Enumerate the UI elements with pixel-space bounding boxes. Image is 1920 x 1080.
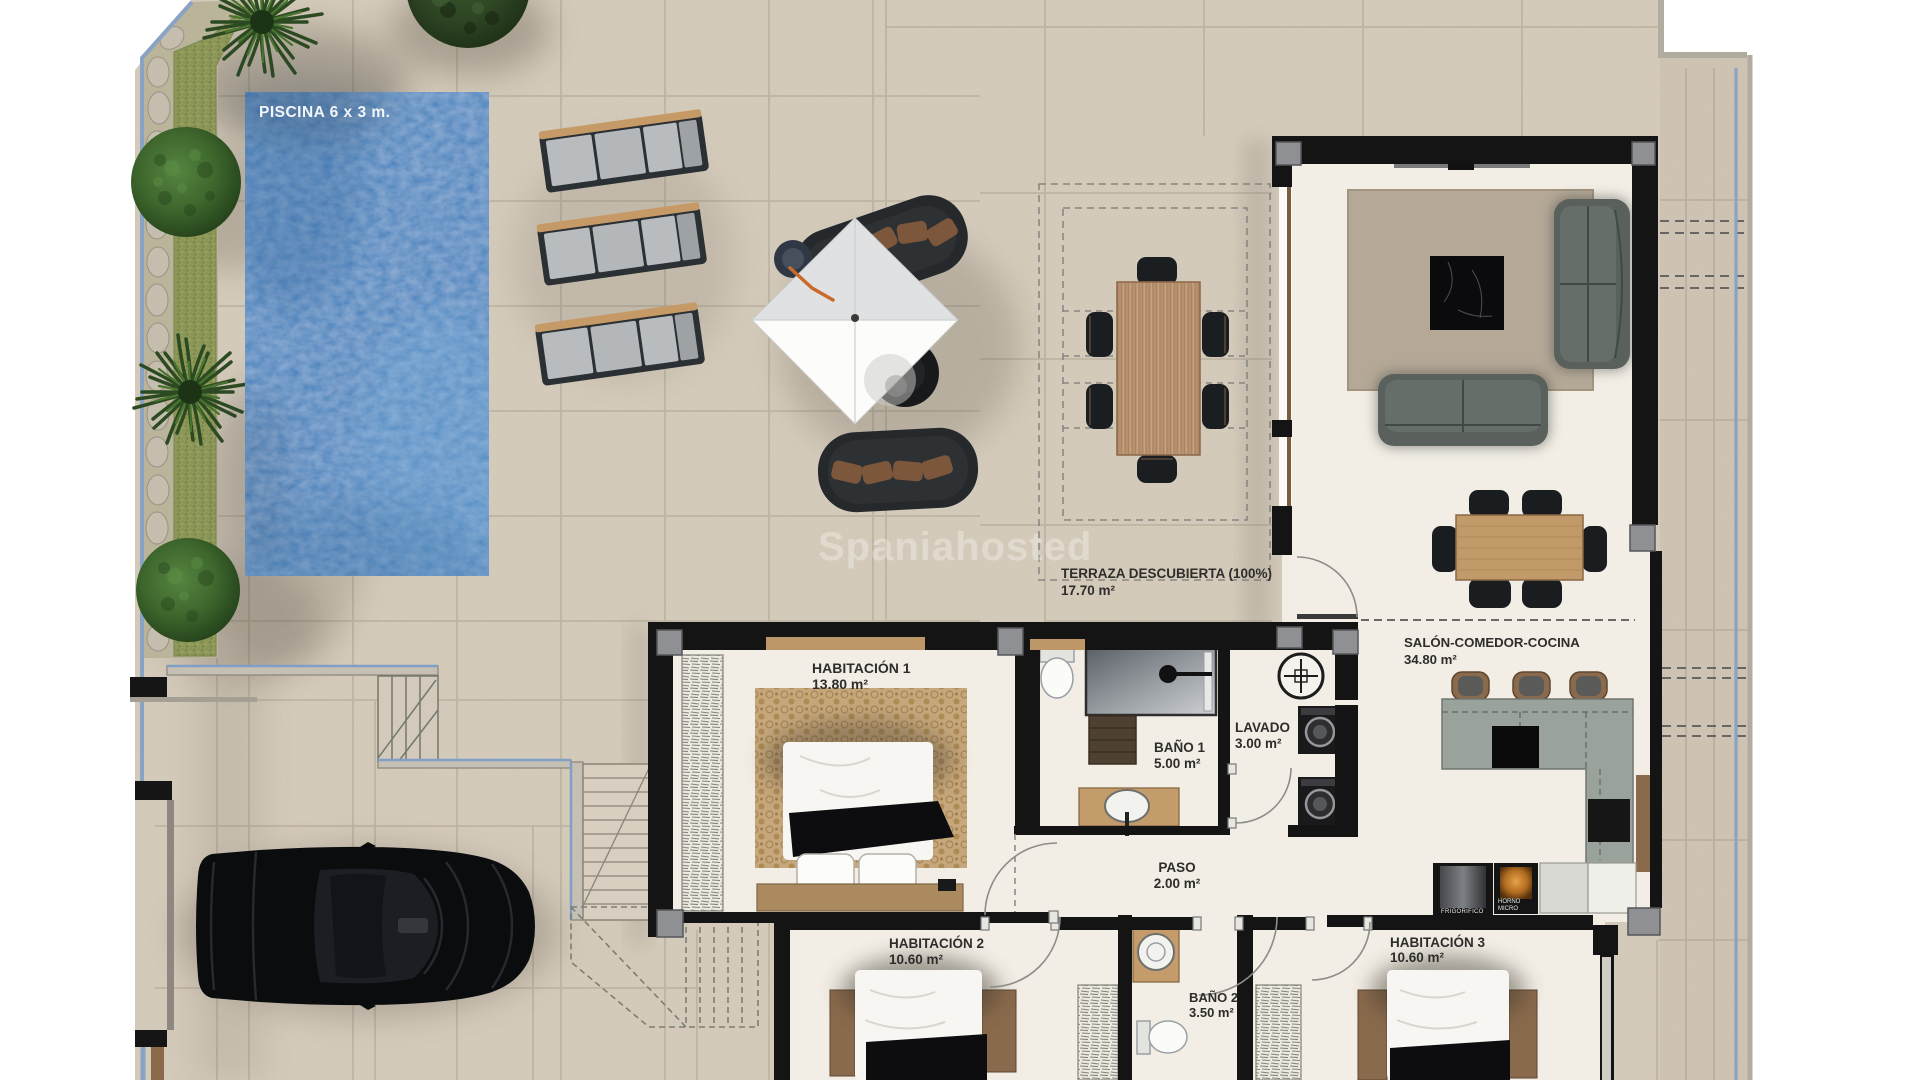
- svg-text:3.50 m²: 3.50 m²: [1189, 1005, 1234, 1020]
- svg-text:FRIGORIFICO: FRIGORIFICO: [1441, 909, 1484, 915]
- svg-text:13.80 m²: 13.80 m²: [812, 676, 868, 692]
- svg-text:BAÑO 1: BAÑO 1: [1154, 740, 1205, 755]
- svg-text:LAVADO: LAVADO: [1235, 720, 1290, 735]
- svg-text:HABITACIÓN 3: HABITACIÓN 3: [1390, 935, 1485, 950]
- svg-text:HORNO: HORNO: [1498, 899, 1521, 905]
- svg-text:PISCINA 6 x 3 m.: PISCINA 6 x 3 m.: [259, 104, 390, 121]
- svg-text:HABITACIÓN 2: HABITACIÓN 2: [889, 936, 984, 951]
- svg-text:SALÓN-COMEDOR-COCINA: SALÓN-COMEDOR-COCINA: [1404, 635, 1580, 650]
- svg-text:10.60 m²: 10.60 m²: [889, 952, 944, 967]
- svg-text:2.00 m²: 2.00 m²: [1154, 876, 1201, 891]
- svg-text:5.00 m²: 5.00 m²: [1154, 756, 1201, 771]
- svg-text:PASO: PASO: [1158, 860, 1195, 875]
- svg-text:34.80 m²: 34.80 m²: [1404, 652, 1457, 667]
- svg-text:3.00 m²: 3.00 m²: [1235, 736, 1282, 751]
- svg-text:BAÑO 2: BAÑO 2: [1189, 990, 1238, 1005]
- svg-text:Spaniahosted: Spaniahosted: [818, 525, 1092, 569]
- svg-text:TERRAZA DESCUBIERTA (100%): TERRAZA DESCUBIERTA (100%): [1061, 566, 1272, 581]
- svg-text:17.70 m²: 17.70 m²: [1061, 583, 1116, 598]
- svg-text:HABITACIÓN 1: HABITACIÓN 1: [812, 659, 911, 676]
- svg-text:10.60 m²: 10.60 m²: [1390, 950, 1445, 965]
- svg-text:MICRO: MICRO: [1498, 906, 1518, 912]
